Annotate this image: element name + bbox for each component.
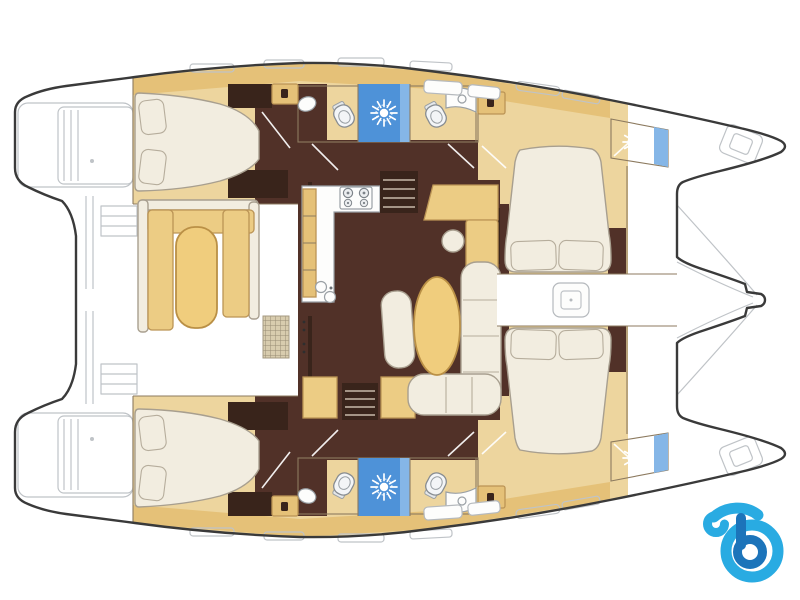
logo-spiral [708, 516, 725, 533]
door-handle-icon [303, 329, 306, 332]
shower-stall-edge [400, 84, 410, 142]
door-handle-icon [303, 343, 306, 346]
wardrobe [228, 84, 272, 108]
sink-icon [458, 95, 466, 103]
tap-icon [281, 89, 288, 98]
saloon [298, 171, 501, 420]
cockpit-table [176, 227, 217, 328]
stool [442, 230, 464, 252]
roof-hatch-icon [467, 84, 500, 99]
walkway-hatch-icon [553, 283, 589, 317]
deck-grate [263, 316, 289, 358]
cleat-icon [90, 159, 94, 163]
door-handle-icon [303, 321, 306, 324]
logo-b-bowl [738, 540, 763, 565]
forward-cabin-bed [505, 146, 611, 272]
door-handle-icon [303, 351, 306, 354]
catamaran-floorplan-svg [0, 0, 800, 600]
floorplan-image [0, 0, 800, 600]
dinette-table [414, 277, 460, 375]
stove-icon [340, 187, 372, 209]
shower-edge [654, 127, 668, 167]
forward-walkway [497, 274, 677, 326]
dinette-chair [380, 290, 415, 369]
logo-top-band [714, 508, 758, 517]
roof-hatch-icon [424, 80, 463, 96]
brand-logo-b [708, 508, 778, 577]
